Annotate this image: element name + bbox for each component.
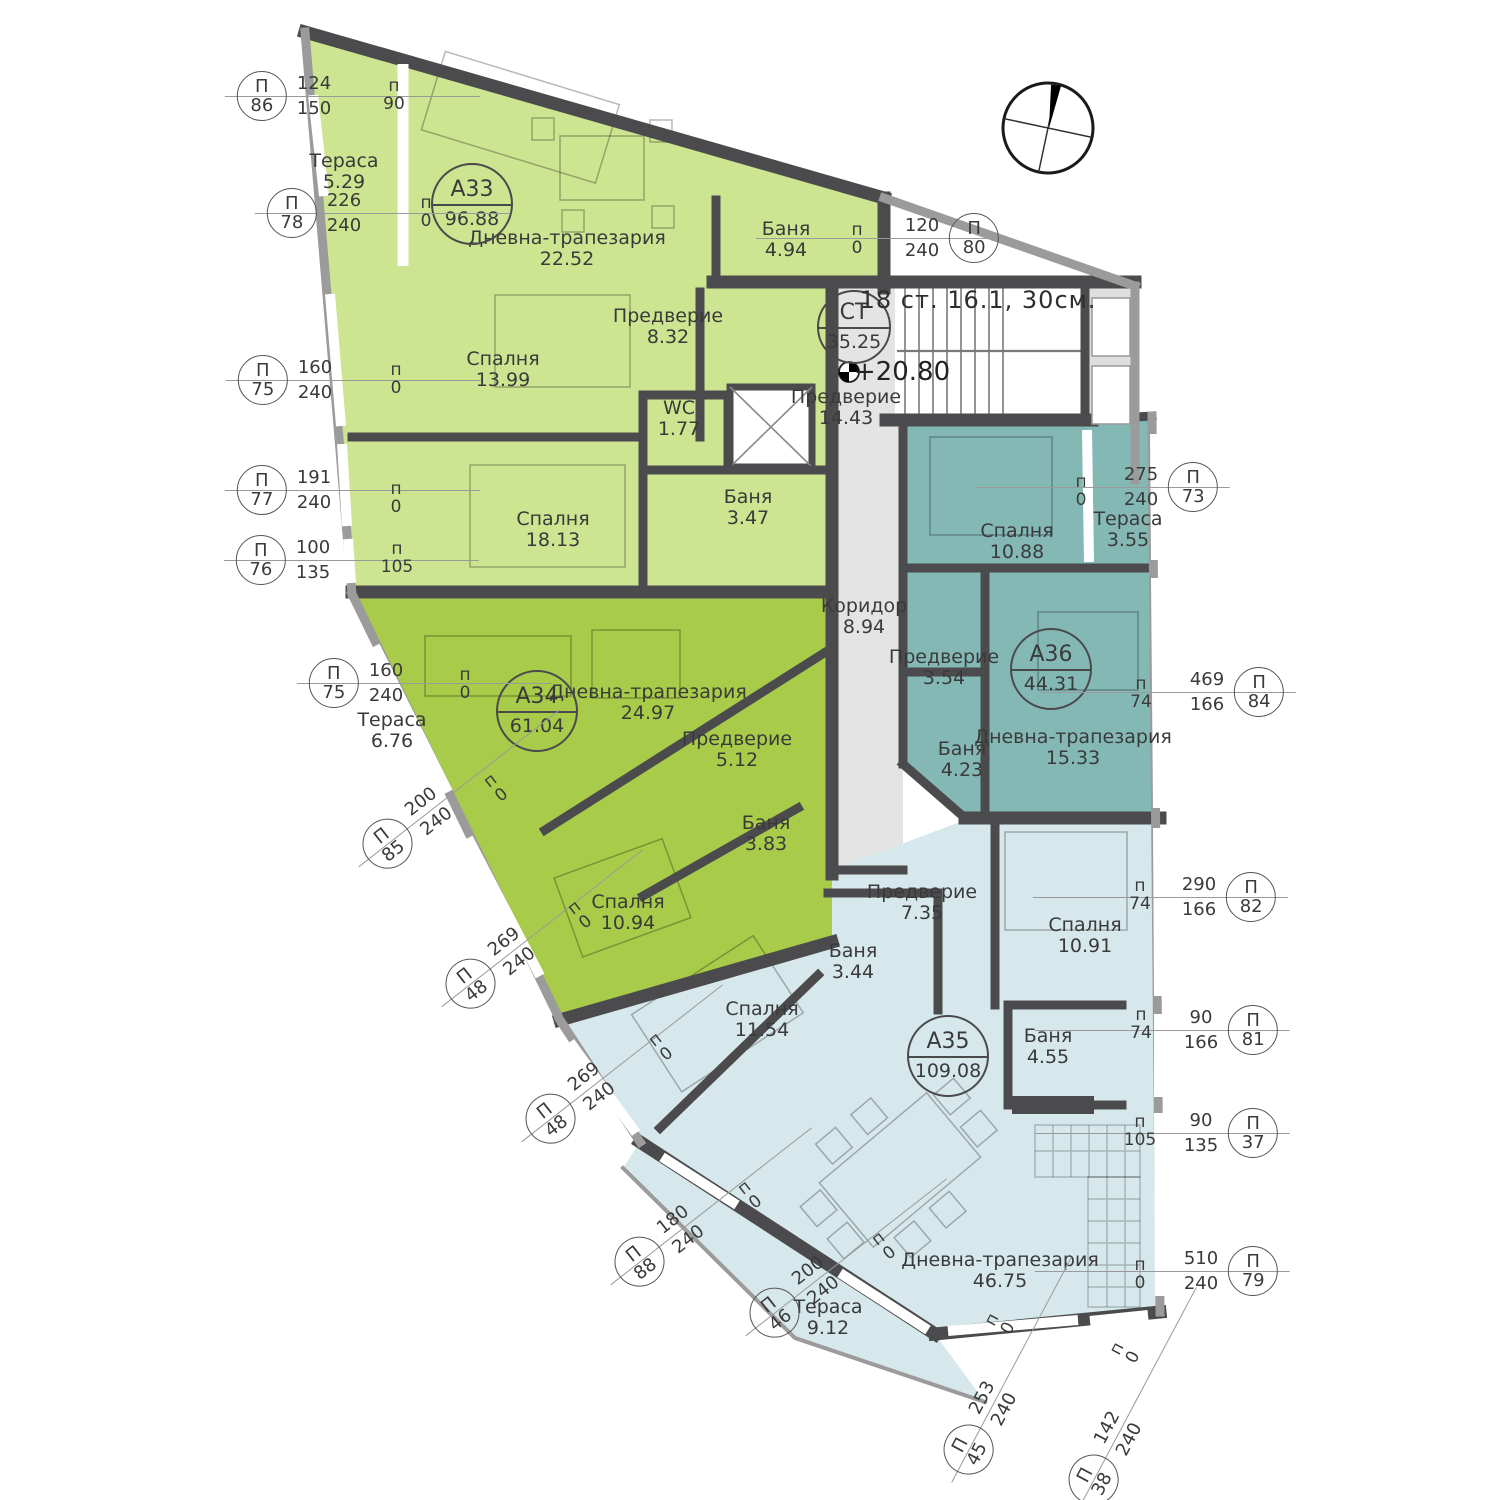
room-name: Спалня bbox=[980, 521, 1053, 542]
room-area: 18.13 bbox=[516, 530, 589, 551]
room-label: Предверие7.35 bbox=[867, 882, 977, 924]
room-label: Предверие5.12 bbox=[682, 729, 792, 771]
window-tag: 120240П80 bbox=[905, 213, 999, 263]
room-area: 3.54 bbox=[889, 668, 999, 689]
window-tag-circle: П80 bbox=[949, 213, 999, 263]
window-tag: П86124150 bbox=[237, 71, 331, 121]
window-dimensions: 290166 bbox=[1182, 875, 1216, 919]
sill-mark: п0 bbox=[1106, 1340, 1143, 1367]
window-tag-circle: П77 bbox=[237, 465, 287, 515]
window-tag-circle: П76 bbox=[236, 535, 286, 585]
room-area: 3.83 bbox=[742, 834, 791, 855]
apartment-id: А33 bbox=[433, 178, 511, 206]
room-label: Баня3.44 bbox=[829, 941, 878, 983]
apartment-id: А34 bbox=[498, 685, 576, 713]
window-dimensions: 90166 bbox=[1184, 1008, 1218, 1052]
room-area: 5.12 bbox=[682, 750, 792, 771]
room-name: WC bbox=[658, 398, 700, 419]
room-area: 10.88 bbox=[980, 542, 1053, 563]
window-tag-circle: П82 bbox=[1226, 872, 1276, 922]
room-name: Тераса bbox=[357, 710, 426, 731]
window-tag: П78226240 bbox=[267, 188, 361, 238]
window-dimensions: 275240 bbox=[1124, 465, 1158, 509]
room-name: Предверие bbox=[867, 882, 977, 903]
room-name: Дневна-трапезария bbox=[549, 682, 747, 703]
window-tag: 90166П81 bbox=[1184, 1005, 1278, 1055]
room-name: Баня bbox=[829, 941, 878, 962]
window-tag: П88180240 bbox=[604, 1199, 709, 1296]
sill-mark: п0 bbox=[390, 480, 401, 516]
room-area: 24.97 bbox=[549, 703, 747, 724]
room-label: Баня3.47 bbox=[724, 487, 773, 529]
window-tag: П75160240 bbox=[238, 355, 332, 405]
elevation-note: +20.80 bbox=[854, 357, 950, 387]
sill-mark: п0 bbox=[981, 1311, 1018, 1338]
window-tag-circle: П75 bbox=[309, 658, 359, 708]
room-area: 8.94 bbox=[821, 617, 907, 638]
sill-mark: п74 bbox=[1130, 1006, 1152, 1042]
room-name: Спалня bbox=[466, 349, 539, 370]
room-label: Тераса3.55 bbox=[1093, 509, 1162, 551]
apartment-area: 61.04 bbox=[510, 713, 564, 737]
sill-mark: п90 bbox=[383, 77, 405, 113]
room-label: Коридор8.94 bbox=[821, 596, 907, 638]
room-label: Спалня11.54 bbox=[725, 999, 798, 1041]
room-label: Спалня18.13 bbox=[516, 509, 589, 551]
window-tag: 90135П37 bbox=[1184, 1108, 1278, 1158]
room-name: Предверие bbox=[682, 729, 792, 750]
window-tag: П77191240 bbox=[237, 465, 331, 515]
window-tag-circle: П86 bbox=[237, 71, 287, 121]
room-name: Баня bbox=[724, 487, 773, 508]
room-area: 14.43 bbox=[791, 408, 901, 429]
window-tag: П38142240 bbox=[1060, 1407, 1148, 1500]
room-area: 10.94 bbox=[591, 913, 664, 934]
sill-mark: п0 bbox=[481, 770, 512, 805]
window-tag-circle: П78 bbox=[267, 188, 317, 238]
room-label: Предверие3.54 bbox=[889, 647, 999, 689]
stairs-note: 18 ст. 16.1, 30см. bbox=[860, 286, 1097, 314]
window-tag: П85200240 bbox=[352, 781, 457, 878]
window-tag: 469166П84 bbox=[1190, 667, 1284, 717]
window-dimensions: 124150 bbox=[297, 74, 331, 118]
window-dimensions: 160240 bbox=[298, 358, 332, 402]
window-tag-circle: П37 bbox=[1228, 1108, 1278, 1158]
room-label: Тераса5.29 bbox=[309, 151, 378, 193]
sill-mark: п0 bbox=[646, 1029, 677, 1064]
window-dimensions: 469166 bbox=[1190, 670, 1224, 714]
room-area: 3.55 bbox=[1093, 530, 1162, 551]
room-name: Коридор bbox=[821, 596, 907, 617]
room-name: Баня bbox=[742, 813, 791, 834]
room-label: Предверие8.32 bbox=[613, 306, 723, 348]
window-dimensions: 90135 bbox=[1184, 1111, 1218, 1155]
sill-mark: п0 bbox=[1075, 473, 1086, 509]
room-area: 10.91 bbox=[1048, 936, 1121, 957]
room-label: Тераса6.76 bbox=[357, 710, 426, 752]
room-area: 4.94 bbox=[762, 240, 811, 261]
room-area: 3.47 bbox=[724, 508, 773, 529]
window-dimensions: 100135 bbox=[296, 538, 330, 582]
window-tag-circle: П38 bbox=[1060, 1446, 1128, 1500]
room-area: 7.35 bbox=[867, 903, 977, 924]
sill-mark: п0 bbox=[869, 1228, 900, 1263]
window-tag-circle: П45 bbox=[935, 1416, 1003, 1484]
room-name: Спалня bbox=[516, 509, 589, 530]
room-area: 3.44 bbox=[829, 962, 878, 983]
room-name: Предверие bbox=[791, 387, 901, 408]
window-dimensions: 120240 bbox=[905, 216, 939, 260]
room-area: 6.76 bbox=[357, 731, 426, 752]
apartment-id: А36 bbox=[1012, 643, 1090, 671]
apartment-id: А35 bbox=[909, 1030, 987, 1058]
room-label: WC1.77 bbox=[658, 398, 700, 440]
room-label: Баня4.55 bbox=[1024, 1026, 1073, 1068]
window-dimensions: 253240 bbox=[966, 1378, 1021, 1429]
window-dimensions: 510240 bbox=[1184, 1249, 1218, 1293]
room-area: 1.77 bbox=[658, 419, 700, 440]
sill-mark: п105 bbox=[381, 540, 413, 576]
room-label: Спалня10.88 bbox=[980, 521, 1053, 563]
room-label: Спалня10.94 bbox=[591, 892, 664, 934]
window-tag: П48269240 bbox=[515, 1056, 620, 1153]
room-label: Дневна-трапезария24.97 bbox=[549, 682, 747, 724]
apartment-area: 109.08 bbox=[915, 1058, 981, 1082]
room-name: Баня bbox=[762, 219, 811, 240]
sill-mark: п0 bbox=[420, 194, 431, 230]
window-tag: 510240П79 bbox=[1184, 1246, 1278, 1296]
room-area: 8.32 bbox=[613, 327, 723, 348]
window-tag: 275240П73 bbox=[1124, 462, 1218, 512]
window-tag-circle: П73 bbox=[1168, 462, 1218, 512]
window-tag: П45253240 bbox=[935, 1377, 1023, 1484]
room-label: Баня4.94 bbox=[762, 219, 811, 261]
apartment-badge: А3396.88 bbox=[431, 163, 513, 245]
labels-layer: Тераса5.29Дневна-трапезария22.52Предвери… bbox=[0, 0, 1500, 1500]
room-label: Предверие14.43 bbox=[791, 387, 901, 429]
room-label: Спалня13.99 bbox=[466, 349, 539, 391]
room-label: Баня3.83 bbox=[742, 813, 791, 855]
window-dimensions: 142240 bbox=[1091, 1408, 1146, 1459]
window-tag: П76100135 bbox=[236, 535, 330, 585]
room-name: Тераса bbox=[309, 151, 378, 172]
room-area: 46.75 bbox=[901, 1271, 1099, 1292]
room-label: Спалня10.91 bbox=[1048, 915, 1121, 957]
window-tag-circle: П84 bbox=[1234, 667, 1284, 717]
sill-mark: п74 bbox=[1130, 675, 1152, 711]
apartment-badge: А3644.31 bbox=[1010, 628, 1092, 710]
floorplan-stage: Тераса5.29Дневна-трапезария22.52Предвери… bbox=[0, 0, 1500, 1500]
apartment-area: 35.25 bbox=[827, 329, 881, 353]
room-name: Дневна-трапезария bbox=[974, 727, 1172, 748]
room-area: 11.54 bbox=[725, 1020, 798, 1041]
sill-mark: п0 bbox=[851, 221, 862, 257]
window-dimensions: 226240 bbox=[327, 191, 361, 235]
sill-mark: п0 bbox=[459, 666, 470, 702]
room-label: Дневна-трапезария15.33 bbox=[974, 727, 1172, 769]
room-name: Предверие bbox=[889, 647, 999, 668]
window-tag-circle: П75 bbox=[238, 355, 288, 405]
room-name: Спалня bbox=[1048, 915, 1121, 936]
sill-mark: п105 bbox=[1124, 1113, 1156, 1149]
window-tag: П48269240 bbox=[435, 921, 540, 1018]
sill-mark: п0 bbox=[1134, 1256, 1145, 1292]
window-dimensions: 160240 bbox=[369, 661, 403, 705]
window-tag-circle: П79 bbox=[1228, 1246, 1278, 1296]
room-name: Спалня bbox=[725, 999, 798, 1020]
room-area: 4.55 bbox=[1024, 1047, 1073, 1068]
room-name: Предверие bbox=[613, 306, 723, 327]
apartment-area: 96.88 bbox=[445, 206, 499, 230]
room-name: Спалня bbox=[591, 892, 664, 913]
window-tag: П75160240 bbox=[309, 658, 403, 708]
room-name: Тераса bbox=[1093, 509, 1162, 530]
window-dimensions: 191240 bbox=[297, 468, 331, 512]
room-area: 22.52 bbox=[468, 249, 666, 270]
apartment-badge: А35109.08 bbox=[907, 1015, 989, 1097]
sill-mark: п74 bbox=[1129, 877, 1151, 913]
room-area: 15.33 bbox=[974, 748, 1172, 769]
window-tag-circle: П81 bbox=[1228, 1005, 1278, 1055]
window-tag: 290166П82 bbox=[1182, 872, 1276, 922]
sill-mark: п0 bbox=[735, 1177, 766, 1212]
sill-mark: п0 bbox=[390, 361, 401, 397]
